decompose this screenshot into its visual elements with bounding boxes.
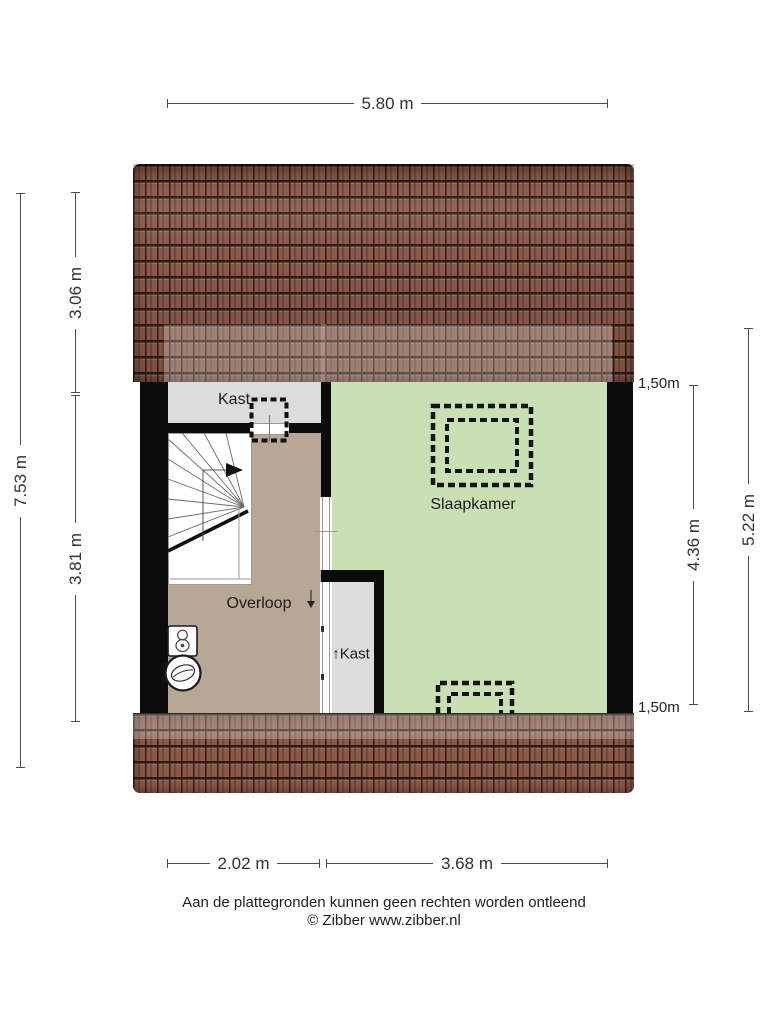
dimension-label: 4.36 m xyxy=(682,509,706,581)
roof-height-strip-left xyxy=(164,324,321,383)
dimension-bottom-right: 3.68 m xyxy=(326,859,608,868)
footer-disclaimer: Aan de plattegronden kunnen geen rechten… xyxy=(0,894,768,911)
toilet-icon xyxy=(162,621,204,693)
dimension-left-total: 7.53 m xyxy=(16,193,25,768)
wall-center-upper xyxy=(321,382,331,497)
closet-bottom-sliding-door xyxy=(320,582,332,713)
dimension-label: 3.81 m xyxy=(64,523,88,595)
door-handle xyxy=(321,626,324,632)
footer-copyright: © Zibber www.zibber.nl xyxy=(0,912,768,929)
roof-height-strip-bottom xyxy=(133,713,634,739)
door-jamb xyxy=(329,497,330,570)
chimney xyxy=(249,397,289,443)
door-jamb xyxy=(322,582,323,713)
door-jamb xyxy=(322,497,323,570)
door-handle xyxy=(321,674,324,680)
staircase xyxy=(168,433,252,585)
dimension-bottom-left: 2.02 m xyxy=(167,859,320,868)
dimension-left-lower: 3.81 m xyxy=(71,395,80,722)
dimension-left-upper: 3.06 m xyxy=(71,192,80,393)
room-label-landing: Overloop xyxy=(227,595,292,613)
roof-window-bedroom-lower xyxy=(435,680,515,714)
wall-closet-bottom-right xyxy=(374,570,384,713)
roof-height-strip-right xyxy=(326,324,612,383)
room-label-bedroom: Slaapkamer xyxy=(430,496,515,514)
floorplan-page: Kast Slaapkamer Overloop ↑Kast 5.80 m 7.… xyxy=(0,0,768,1024)
door-crossbar xyxy=(314,531,338,532)
dimension-label: 7.53 m xyxy=(9,445,33,517)
dimension-top-width: 5.80 m xyxy=(167,99,608,108)
dimension-label: 3.06 m xyxy=(64,257,88,329)
dimension-label: 5.22 m xyxy=(737,484,761,556)
door-landing-bedroom xyxy=(320,497,332,570)
door-slide-arrow-icon xyxy=(305,590,317,608)
roof-strip-divider xyxy=(321,324,326,382)
room-label-closet-top: Kast xyxy=(218,391,250,409)
dimension-right-total: 5.22 m xyxy=(744,328,753,712)
roof-window-bedroom xyxy=(430,403,534,489)
dimension-label: 2.02 m xyxy=(210,854,278,874)
door-jamb xyxy=(329,582,330,713)
wall-under-closet-top-a xyxy=(168,423,250,433)
height-marker-bottom: 1,50m xyxy=(638,699,680,716)
dimension-label: 5.80 m xyxy=(354,94,422,114)
height-marker-top: 1,50m xyxy=(638,375,680,392)
dimension-label: 3.68 m xyxy=(433,854,501,874)
wall-right xyxy=(607,382,633,713)
room-label-closet-bottom: ↑Kast xyxy=(332,646,370,663)
dimension-right-room: 4.36 m xyxy=(689,385,698,705)
